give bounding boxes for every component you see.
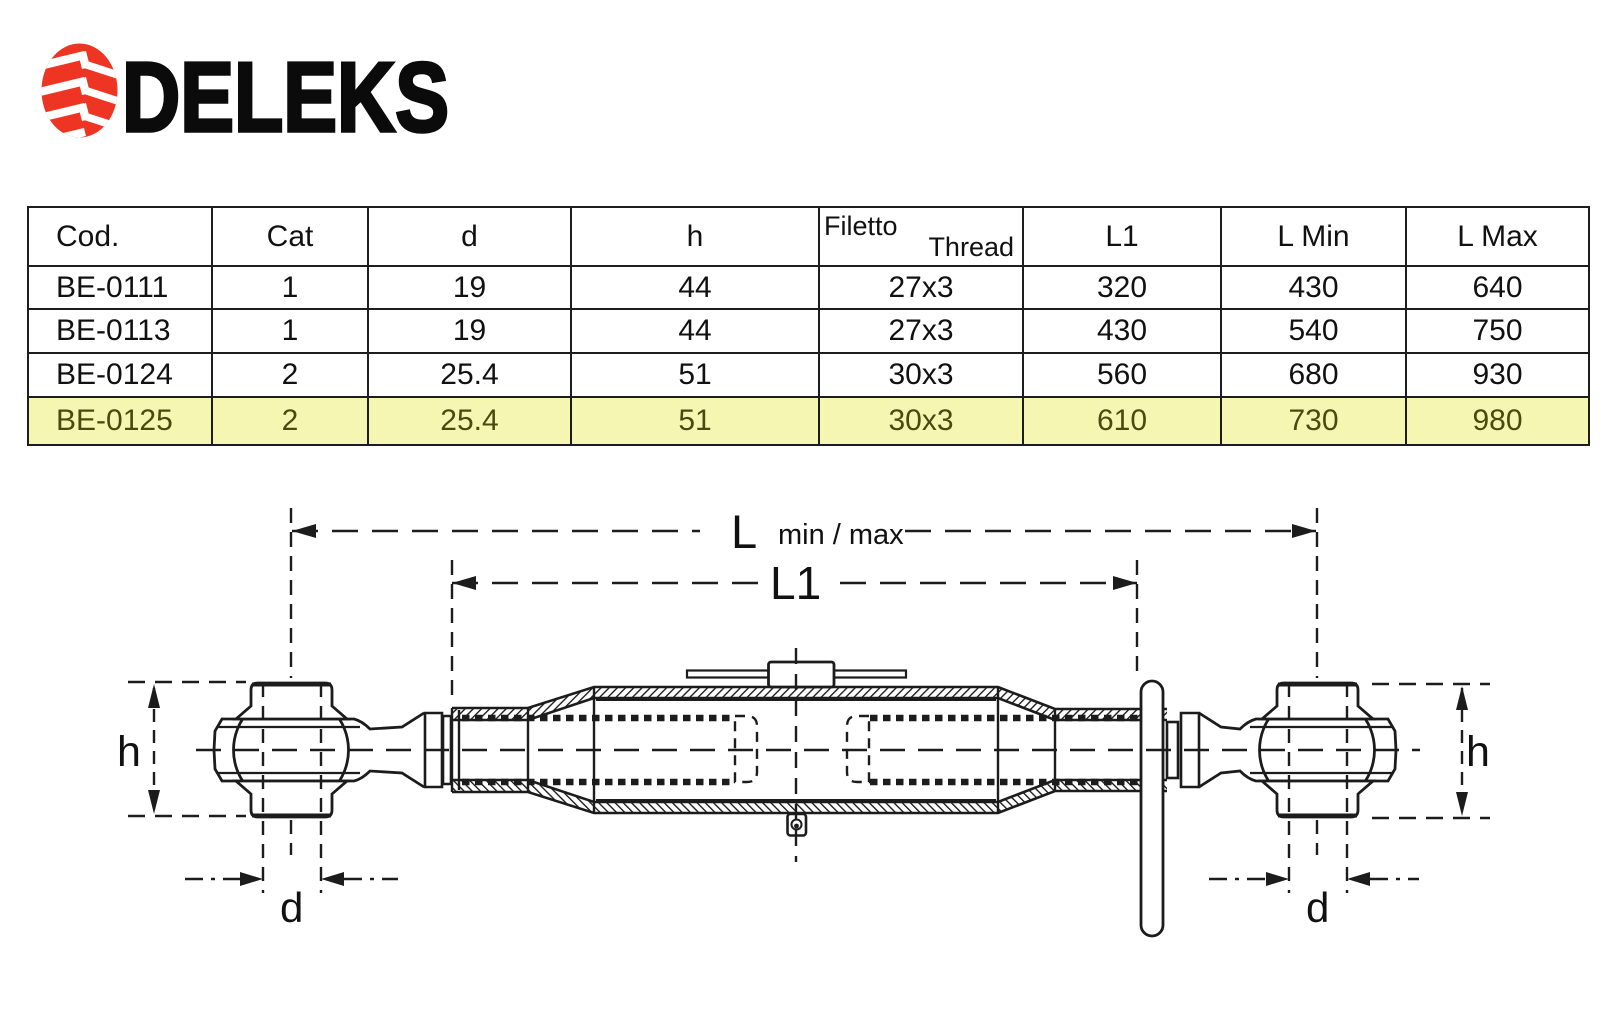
svg-text:L1: L1: [770, 557, 821, 609]
svg-text:d: d: [1306, 884, 1329, 931]
svg-text:L: L: [731, 505, 757, 558]
svg-text:DELEKS: DELEKS: [122, 42, 449, 152]
svg-text:min / max: min / max: [778, 519, 904, 551]
svg-text:h: h: [1466, 728, 1490, 776]
svg-text:d: d: [280, 884, 303, 931]
svg-text:h: h: [117, 728, 141, 776]
